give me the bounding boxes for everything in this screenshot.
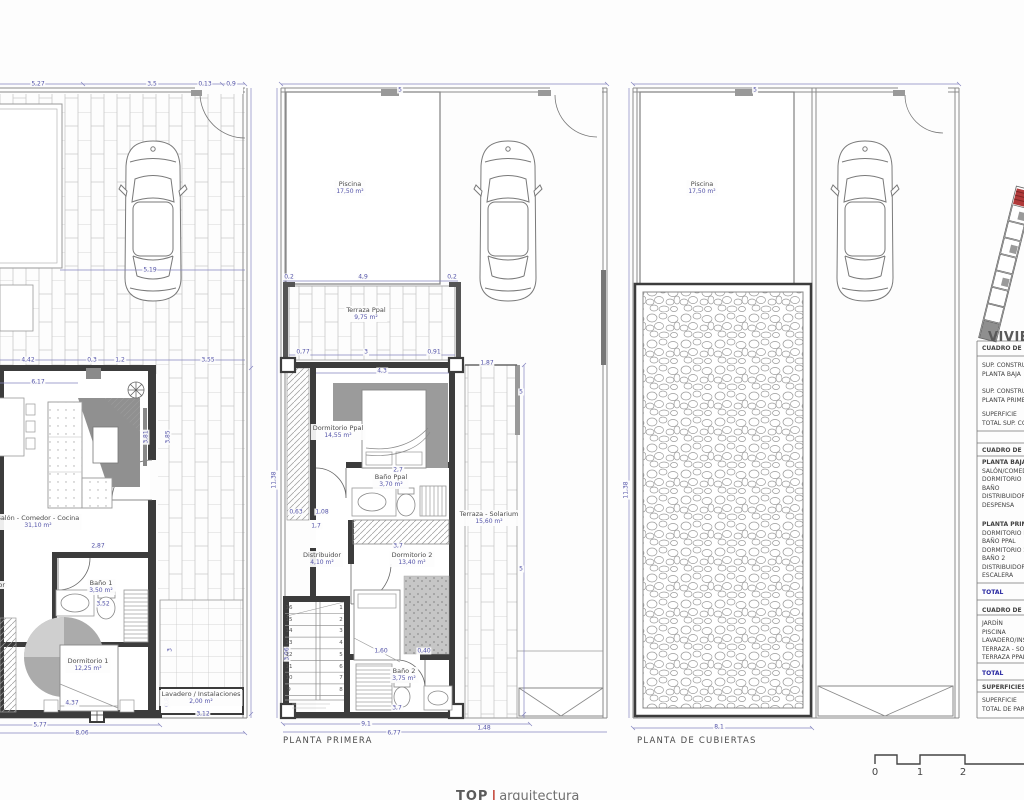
dimension-label: 3	[167, 647, 174, 653]
dimension-label: 3,81	[143, 429, 150, 444]
stair-number: 4	[339, 640, 343, 646]
stair-number: 2	[339, 617, 343, 623]
logo-text-right: arquitectura	[499, 789, 579, 800]
dimension-label: 3,85	[165, 429, 172, 444]
legend-row: ESCALERA	[982, 571, 1013, 580]
room-label: Baño 23,75 m²	[390, 667, 418, 683]
scale-number: 0	[872, 767, 878, 778]
legend-row: SUPERFICIES	[982, 683, 1024, 692]
dimension-label: 1,60	[373, 648, 388, 655]
dimension-label: 3,7	[392, 543, 404, 550]
room-label: Dormitorio Ppal14,55 m²	[311, 424, 366, 440]
dimension-label: 0,2	[446, 274, 458, 281]
scale-number: 1	[917, 767, 923, 778]
dimension-label: 11,38	[271, 470, 278, 489]
dimension-label: 8,1	[713, 724, 725, 731]
dimension-label: 1,87	[479, 360, 494, 367]
dimension-label: 5	[518, 389, 524, 396]
legend-row: CUADRO DE SUPERFICIES	[982, 606, 1024, 615]
legend-row: DORMITORIO 1	[982, 475, 1024, 484]
room-label: Dormitorio 112,25 m²	[66, 657, 111, 673]
dimension-label: 3,52	[95, 601, 110, 608]
dimension-label: 0,91	[426, 349, 441, 356]
legend-row: SUP. CONSTRUIDAPLANTA BAJA	[982, 361, 1024, 379]
dimension-label: 4,9	[357, 274, 369, 281]
logo-separator: |	[488, 789, 499, 800]
car-icon	[474, 141, 542, 301]
stair-number: 8	[339, 687, 343, 693]
dimension-label: 3,5	[146, 81, 158, 88]
stair-number: 11	[286, 664, 293, 670]
dimension-label: 0,40	[416, 648, 431, 655]
planta-baja-drawing	[0, 82, 253, 735]
dimension-label: 4,42	[20, 357, 35, 364]
room-label: Distribuidor4,10 m²	[301, 551, 343, 567]
legend-row: JARDÍN	[982, 619, 1003, 628]
planta-cubiertas-label: PLANTA DE CUBIERTAS	[637, 736, 757, 746]
dimension-label: 9,1	[360, 721, 372, 728]
dimension-label: 3,7	[391, 705, 403, 712]
legend-row: DISTRIBUIDOR	[982, 492, 1024, 501]
stair-number: 9	[287, 687, 291, 693]
legend-row: SUPERFICIETOTAL SUP. CONSTRUIDA	[982, 410, 1024, 428]
drawing-sheet: 5,273,50,130,95,194,420,31,23,556,173,81…	[0, 0, 1024, 800]
dimension-label: 4,37	[64, 700, 79, 707]
car-icon	[119, 141, 187, 301]
floor-plan-drawing	[0, 0, 1024, 800]
legend-row: LAVADERO/INSTALACIONES	[982, 636, 1024, 645]
dimension-label: 5,77	[32, 722, 47, 729]
dimension-label: 0,9	[225, 81, 237, 88]
dimension-label: 5,19	[142, 267, 157, 274]
room-label: Terraza - Solarium15,60 m²	[458, 510, 521, 526]
room-label: Baño Ppal3,70 m²	[373, 473, 409, 489]
dimension-label: 1,08	[314, 509, 329, 516]
legend-table: CUADRO DE SUPERFICIESSUP. CONSTRUIDAPLAN…	[977, 0, 1024, 800]
legend-row: PLANTA PRIMERA	[982, 520, 1024, 529]
dimension-label: 8,06	[74, 730, 89, 737]
dimension-label: 11,38	[623, 480, 630, 499]
legend-row: TOTAL	[982, 669, 1003, 678]
dimension-label: 5	[518, 566, 524, 573]
dimension-label: 0,77	[295, 349, 310, 356]
legend-row: TOTAL	[982, 588, 1003, 597]
stair-number: 15	[286, 617, 293, 623]
dimension-label: 3,55	[200, 357, 215, 364]
scale-number: 2	[960, 767, 966, 778]
dimension-label: 5	[397, 87, 403, 94]
car-icon	[831, 141, 899, 301]
legend-row: BAÑO PPAL	[982, 537, 1016, 546]
planta-primera-drawing	[277, 82, 609, 732]
stair-number: 10	[286, 675, 293, 681]
room-label: Piscina17,50 m²	[686, 180, 717, 196]
legend-row: SUP. CONSTRUIDAPLANTA PRIMERA	[982, 387, 1024, 405]
legend-row: BAÑO 2	[982, 554, 1005, 563]
legend-row: PLANTA BAJA	[982, 458, 1024, 467]
stair-number: 14	[286, 628, 293, 634]
dimension-label: 0,3	[86, 357, 98, 364]
room-label: Dormitorio 213,40 m²	[390, 551, 435, 567]
legend-row: CUADRO DE SUPERFICIES	[982, 344, 1024, 353]
room-label: Baño 13,50 m²	[87, 579, 115, 595]
dimension-label: 3	[363, 349, 369, 356]
planta-cubiertas-drawing	[629, 82, 961, 730]
dimension-label: 5	[752, 87, 758, 94]
stair-number: 3	[339, 628, 343, 634]
room-label: Terraza Ppal9,75 m²	[344, 306, 387, 322]
dimension-label: 5,27	[30, 81, 45, 88]
stair-number: 12	[286, 652, 293, 658]
planta-primera-label: PLANTA PRIMERA	[283, 736, 373, 746]
stair-number: 16	[286, 605, 293, 611]
legend-row: DESPENSA	[982, 501, 1014, 510]
room-label: Distribuidor	[0, 581, 7, 589]
stair-number: 13	[286, 640, 293, 646]
dimension-label: 6,17	[30, 379, 45, 386]
stair-number: 1	[339, 605, 343, 611]
stair-number: 6	[339, 664, 343, 670]
legend-row: CUADRO DE SUPERFICIES ÚTILES	[982, 446, 1024, 455]
room-label: Piscina17,50 m²	[334, 180, 365, 196]
dimension-label: 1,7	[310, 523, 322, 530]
legend-row: SUPERFICIETOTAL DE PARCELA	[982, 696, 1024, 714]
dimension-label: 4,3	[376, 368, 388, 375]
dimension-label: 2,87	[90, 543, 105, 550]
dimension-label: 1,2	[114, 357, 126, 364]
room-label: Salón - Comedor - Cocina31,10 m²	[0, 514, 81, 530]
dimension-label: 6,77	[386, 730, 401, 737]
firm-logo: TOP|arquitectura	[456, 789, 579, 800]
room-label: Lavadero / Instalaciones2,00 m²	[160, 690, 243, 706]
dimension-label: 1,48	[476, 725, 491, 732]
dimension-label: 0,63	[288, 509, 303, 516]
legend-row: TERRAZA PPAL	[982, 653, 1024, 662]
dimension-label: 0,13	[197, 81, 212, 88]
dimension-label: 3,12	[195, 711, 210, 718]
stair-number: 7	[339, 675, 343, 681]
stair-number: 5	[339, 652, 343, 658]
dimension-label: 0,2	[283, 274, 295, 281]
logo-text-left: TOP	[456, 789, 488, 800]
